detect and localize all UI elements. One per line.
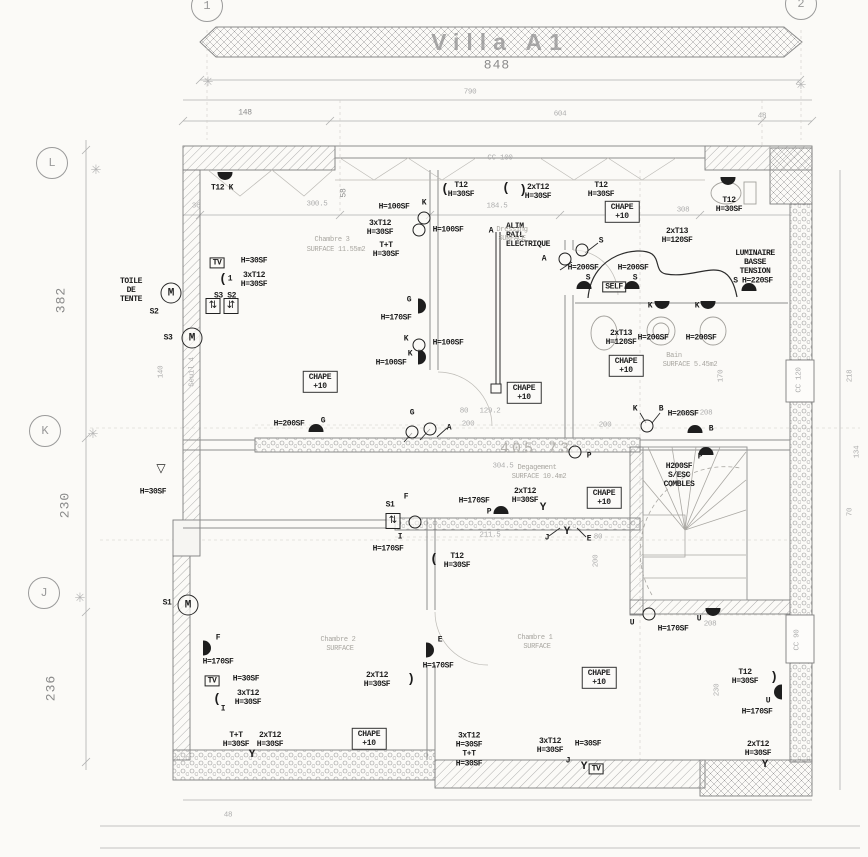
room-label: SURFACE 11.55m2	[307, 246, 366, 254]
antenna-socket-icon: Y	[540, 502, 547, 514]
room-label: SURFACE	[523, 643, 550, 651]
outlet-icon	[409, 516, 422, 529]
electrical-annotation: 1	[228, 274, 232, 283]
survey-marker-icon: ✳	[88, 426, 99, 442]
dimension-label: 208	[704, 621, 717, 630]
outlet-icon	[576, 244, 589, 257]
dimension-label: 208	[700, 410, 713, 419]
shutter-switch-icon: ⇅	[206, 298, 221, 314]
electrical-annotation: S1	[386, 500, 395, 509]
dimension-label: 308	[677, 207, 690, 216]
room-label: SURFACE 5.45m2	[663, 361, 718, 369]
electrical-annotation: H=170SF	[381, 313, 412, 322]
dimension-label: 140	[158, 366, 167, 379]
electrical-annotation: 3xT12 H=30SF	[367, 219, 393, 237]
dimension-label: 211.5	[479, 532, 500, 541]
chape-note: CHAPE +10	[605, 201, 640, 223]
dimension-label: 170	[718, 370, 727, 383]
outlet-icon	[413, 339, 426, 352]
chape-note: CHAPE +10	[582, 667, 617, 689]
electrical-annotation: E	[587, 534, 591, 543]
ceiling-light-icon	[699, 447, 714, 455]
electrical-annotation: J	[545, 533, 549, 542]
room-label: SURFACE 10.4m2	[512, 473, 567, 481]
electrical-annotation: P	[487, 507, 491, 516]
electrical-annotation: T+T H=30SF	[373, 241, 399, 259]
electrical-annotation: F	[404, 492, 408, 501]
chape-note: CHAPE +10	[352, 728, 387, 750]
dimension-label: 134	[854, 446, 863, 459]
dimension-label: 36	[192, 203, 200, 212]
electrical-annotation: A	[447, 423, 451, 432]
grid-bubble: J	[28, 577, 60, 609]
electrical-annotation: E	[438, 635, 442, 644]
motor-icon: M	[182, 328, 203, 349]
ceiling-light-icon	[688, 425, 703, 433]
dimension-label: 218	[847, 370, 856, 383]
electrical-annotation: T12 H=30SF	[588, 181, 614, 199]
electrical-annotation: B	[709, 424, 713, 433]
electrical-annotation: H=100SF	[433, 338, 464, 347]
survey-marker-icon: ✳	[203, 74, 214, 90]
electrical-annotation: S3	[164, 333, 173, 342]
electrical-annotation: H=200SF	[618, 263, 649, 272]
outlet-icon	[641, 420, 654, 433]
electrical-annotation: TOILE DE TENTE	[120, 277, 142, 305]
electrical-annotation: 2xT13 H=120SF	[662, 227, 693, 245]
dimension-label: 48	[224, 812, 232, 821]
room-label: Chambre 3	[314, 236, 349, 244]
dimension-label: 848	[484, 59, 510, 74]
electrical-annotation: T12 H=30SF	[448, 181, 474, 199]
ceiling-light-icon	[625, 281, 640, 289]
ceiling-light-icon	[494, 506, 509, 514]
room-label: SURFACE	[326, 645, 353, 653]
dimension-label: 200	[599, 422, 612, 431]
electrical-annotation: T12 K	[211, 183, 233, 192]
outlet-icon	[559, 253, 572, 266]
ceiling-light-icon	[742, 283, 757, 291]
electrical-annotation: H=200SF	[274, 419, 305, 428]
dimension-label: 382	[55, 287, 70, 313]
antenna-socket-icon: Y	[762, 759, 769, 771]
ceiling-light-icon	[577, 281, 592, 289]
floor-plan-sheet: Villa A1 T12 KH=100SFK3xT12 H=30SFT+T H=…	[0, 0, 868, 857]
electrical-annotation: H=170SF	[742, 707, 773, 716]
electrical-annotation: K	[422, 198, 426, 207]
electrical-annotation: TV	[210, 257, 225, 268]
switch-icon: (	[219, 272, 227, 287]
room-label: SURFACE	[498, 235, 525, 243]
antenna-socket-icon: Y	[564, 526, 571, 538]
electrical-annotation: I	[398, 532, 402, 541]
dimension-label: CC 120	[796, 367, 805, 392]
electrical-annotation: TV	[205, 675, 220, 686]
dimension-label: 80	[460, 408, 468, 417]
switch-icon: (	[430, 552, 438, 567]
dimension-label: 304.5	[492, 463, 513, 472]
electrical-annotation: 2xT12 H=30SF	[525, 183, 551, 201]
dimension-label: 80	[594, 534, 602, 543]
electrical-annotation: 3xT12 H=30SF T+T H=30SF	[456, 732, 482, 769]
electrical-annotation: 3xT12 H=30SF	[235, 689, 261, 707]
switch-icon: )	[519, 183, 527, 198]
electrical-annotation: 2xT12 H=30SF	[512, 487, 538, 505]
electrical-annotation: K	[408, 349, 412, 358]
electrical-annotation: K	[633, 404, 637, 413]
antenna-socket-icon: Y	[581, 761, 588, 773]
electrical-annotation: H=170SF	[658, 624, 689, 633]
room-label: Chambre 2	[320, 636, 355, 644]
outlet-icon	[413, 224, 426, 237]
electrical-annotation: P	[587, 451, 591, 460]
ceiling-light-icon	[774, 685, 782, 700]
electrical-annotation: H=200SF	[568, 263, 599, 272]
electrical-annotation: G	[321, 416, 325, 425]
electrical-annotation: S1	[163, 598, 172, 607]
shutter-switch-icon: ⇅	[386, 513, 401, 529]
survey-marker-icon: ✳	[796, 77, 807, 93]
outlet-icon	[643, 608, 656, 621]
electrical-annotation: T+T H=30SF	[223, 731, 249, 749]
dimension-label: 184.5	[486, 203, 507, 212]
electrical-annotation: H=170SF	[459, 496, 490, 505]
electrical-annotation: H=30SF	[140, 487, 166, 496]
shutter-switch-icon: ⇵	[224, 298, 239, 314]
electrical-annotation: 3xT12 H=30SF	[241, 271, 267, 289]
motor-icon: M	[161, 283, 182, 304]
electrical-annotation: U	[630, 618, 634, 627]
electrical-annotation: H200SF S/ESC COMBLES	[664, 462, 695, 490]
electrical-annotation: LUMINAIRE BASSE TENSION	[735, 249, 775, 277]
antenna-socket-icon: Y	[249, 749, 256, 761]
electrical-annotation: H=30SF	[575, 739, 601, 748]
dimension-label: 48	[758, 113, 766, 122]
electrical-annotation: U	[697, 614, 701, 623]
electrical-annotation: H=100SF	[433, 225, 464, 234]
electrical-annotation: I	[221, 704, 225, 713]
chape-note: CHAPE +10	[587, 487, 622, 509]
dimension-label: 790	[464, 89, 477, 98]
dimension-label: CC 90	[794, 629, 803, 650]
dimension-label: 76	[678, 411, 686, 420]
electrical-annotation: T12 H=30SF	[732, 668, 758, 686]
dimension-label: 405 73	[500, 440, 572, 457]
chape-note: CHAPE +10	[303, 371, 338, 393]
room-label: Degagement	[517, 464, 556, 472]
dimension-label: 300.5	[306, 201, 327, 210]
grid-bubble: K	[29, 415, 61, 447]
electrical-annotation: TV	[589, 763, 604, 774]
survey-marker-icon: ✳	[91, 162, 102, 178]
switch-icon: )	[770, 670, 778, 685]
survey-marker-icon: ✳	[75, 590, 86, 606]
electrical-annotation: J	[566, 756, 570, 765]
electrical-annotation: F	[216, 633, 220, 642]
switch-icon: (	[213, 692, 221, 707]
chape-note: CHAPE +10	[507, 382, 542, 404]
outlet-icon	[569, 446, 582, 459]
dimension-label: 230	[714, 684, 723, 697]
electrical-annotation: A	[489, 226, 493, 235]
grid-bubble: L	[36, 147, 68, 179]
electrical-annotation: H=200SF	[638, 333, 669, 342]
electrical-annotation: H=100SF	[376, 358, 407, 367]
electrical-annotation: 2xT13 H=120SF	[606, 329, 637, 347]
ceiling-light-icon	[309, 424, 324, 432]
sheet-title: Villa A1	[431, 29, 569, 55]
electrical-annotation: H=100SF	[379, 202, 410, 211]
electrical-annotation: G	[410, 408, 414, 417]
chape-note: CHAPE +10	[609, 355, 644, 377]
dimension-label: 236	[45, 675, 60, 701]
electrical-annotation: 2xT12 H=30SF	[745, 740, 771, 758]
electrical-annotation: H=170SF	[373, 544, 404, 553]
dimension-label: 58	[339, 188, 348, 197]
electrical-annotation: U	[766, 696, 770, 705]
electrical-annotation: T12 H=30SF	[444, 552, 470, 570]
electrical-annotation: S2	[150, 307, 159, 316]
room-label: Bain	[666, 352, 682, 360]
switch-icon: )	[407, 672, 415, 687]
dimension-label: Seuil 4	[189, 357, 198, 386]
dimension-label: 200	[462, 421, 475, 430]
dimension-label: 230	[59, 492, 74, 518]
electrical-annotation: 2xT12 H=30SF	[257, 731, 283, 749]
electrical-annotation: H=170SF	[203, 657, 234, 666]
electrical-annotation: SELF	[602, 281, 626, 292]
outlet-icon	[424, 423, 437, 436]
electrical-annotation: 3xT12 H=30SF	[537, 737, 563, 755]
switch-icon: (	[441, 182, 449, 197]
electrical-annotation: H=200SF	[686, 333, 717, 342]
room-label: Dressing	[496, 226, 527, 234]
electrical-annotation: 2xT12 H=30SF	[364, 671, 390, 689]
electrical-annotation: H=170SF	[423, 661, 454, 670]
dimension-label: 148	[238, 108, 252, 117]
outlet-icon	[406, 426, 419, 439]
dimension-label: 129.2	[479, 408, 500, 417]
electrical-annotation: A	[542, 254, 546, 263]
dimension-label: CC 100	[487, 155, 512, 164]
switch-icon: (	[502, 181, 510, 196]
dimension-label: 604	[554, 111, 567, 120]
electrical-annotation: H=30SF	[233, 674, 259, 683]
electrical-annotation: K	[695, 301, 699, 310]
electrical-annotation: H=30SF	[241, 256, 267, 265]
electrical-annotation: K	[404, 334, 408, 343]
room-label: Chambre 1	[517, 634, 552, 642]
electrical-annotation: G	[407, 295, 411, 304]
dimension-label: 70	[847, 508, 856, 516]
dimension-label: 200	[593, 555, 602, 568]
electrical-annotation: B	[659, 404, 663, 413]
electrical-annotation: T12 H=30SF	[716, 196, 742, 214]
electrical-annotation: S	[599, 236, 603, 245]
motor-icon: M	[178, 595, 199, 616]
doorbell-icon: ▽	[156, 461, 165, 475]
electrical-annotation: K	[648, 301, 652, 310]
